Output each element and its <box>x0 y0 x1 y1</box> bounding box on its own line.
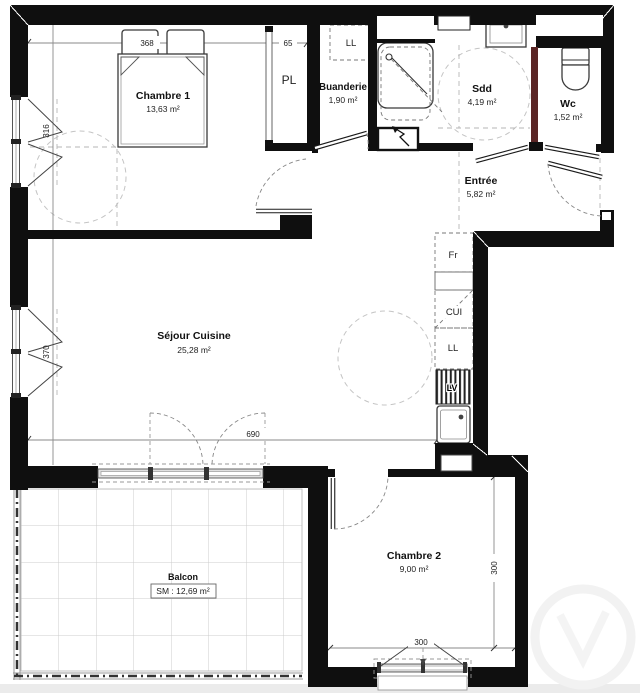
kitchen-sink-icon <box>437 406 470 443</box>
laundry-hookup-label: LL <box>346 38 357 49</box>
room-label-sdd: Sdd <box>472 83 492 95</box>
room-area-chambre1: 13,63 m² <box>146 104 180 114</box>
fridge-label: Fr <box>449 250 458 261</box>
washing-machine-label: LL <box>448 343 459 354</box>
dim-370: 370 <box>42 345 51 359</box>
closet-sliding-door <box>265 26 273 146</box>
room-label-balcon: Balcon <box>168 572 198 582</box>
room-label-entree: Entrée <box>465 175 498 187</box>
room-area-chambre2: 9,00 m² <box>400 564 429 574</box>
dim-690: 690 <box>246 430 260 439</box>
room-area-sejour: 25,28 m² <box>177 345 211 355</box>
dim-300-window: 300 <box>414 638 428 647</box>
dim-65: 65 <box>284 39 293 48</box>
room-label-sejour: Séjour Cuisine <box>157 330 231 342</box>
dim-316: 316 <box>42 124 51 138</box>
floor-plan-svg: 368 65 316 370 690 300 300 Chambre 1 13,… <box>0 0 640 693</box>
closet-label: PL <box>282 73 297 87</box>
kitchen-unit-label: CUI <box>446 307 462 318</box>
room-label-wc: Wc <box>560 98 576 110</box>
room-area-wc: 1,52 m² <box>554 112 583 122</box>
wall-niche <box>441 455 472 471</box>
dim-300-height: 300 <box>490 561 499 575</box>
room-surface-balcon: SM : 12,69 m² <box>156 586 210 596</box>
dim-368: 368 <box>140 39 154 48</box>
vent-box <box>438 16 470 30</box>
room-area-entree: 5,82 m² <box>467 189 496 199</box>
wc-partition-wall <box>531 47 538 142</box>
electrical-panel-icon <box>378 126 418 150</box>
room-label-buanderie: Buanderie <box>319 82 367 93</box>
dishwasher-label: LV <box>447 383 458 393</box>
toilet-icon <box>562 48 589 90</box>
room-label-chambre1: Chambre 1 <box>136 90 190 102</box>
room-area-sdd: 4,19 m² <box>468 97 497 107</box>
room-area-buanderie: 1,90 m² <box>329 95 358 105</box>
floor-plan: 368 65 316 370 690 300 300 Chambre 1 13,… <box>0 0 640 693</box>
room-label-chambre2: Chambre 2 <box>387 550 441 562</box>
